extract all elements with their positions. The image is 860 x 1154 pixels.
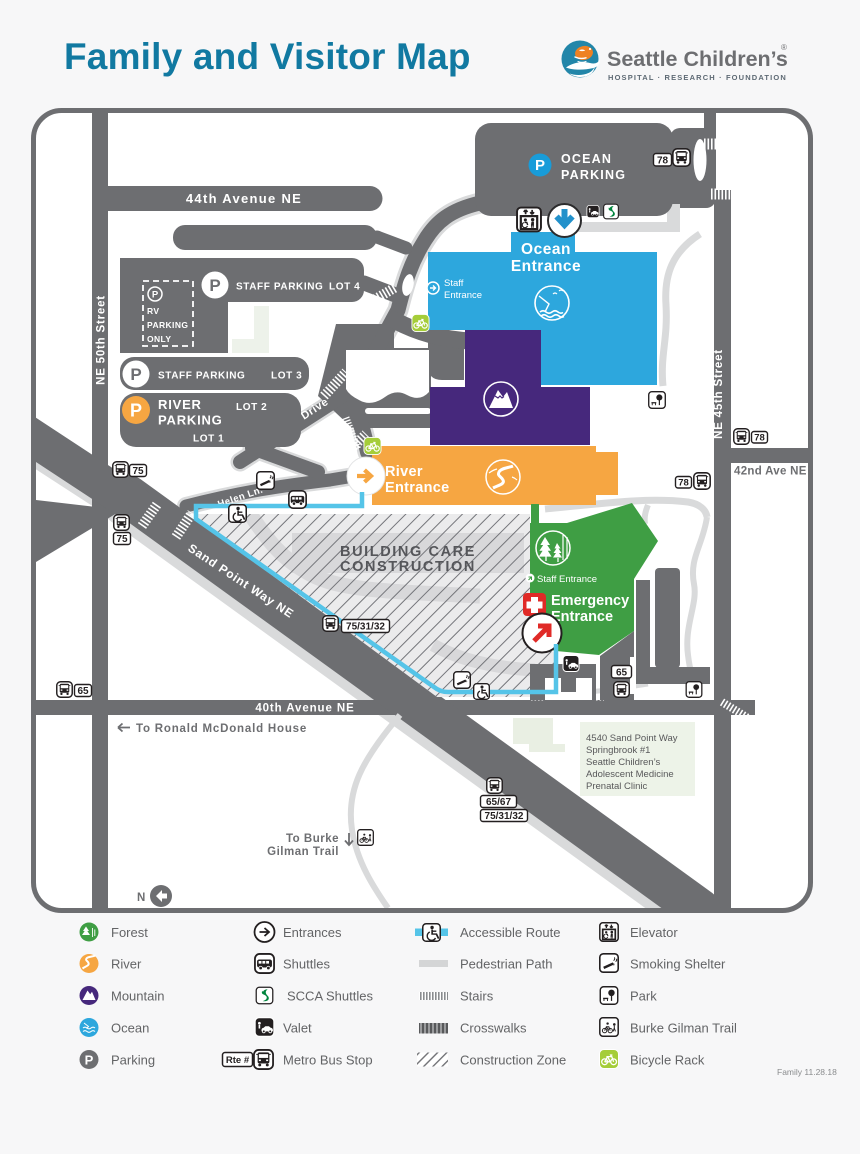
svg-text:P: P xyxy=(130,365,141,384)
svg-text:Shuttles: Shuttles xyxy=(283,957,330,972)
svg-text:OCEAN: OCEAN xyxy=(561,152,612,166)
svg-text:N: N xyxy=(137,892,145,904)
svg-text:Adolescent Medicine: Adolescent Medicine xyxy=(586,769,674,780)
svg-text:P: P xyxy=(535,157,545,174)
svg-text:LOT 1: LOT 1 xyxy=(193,434,224,445)
svg-text:Springbrook #1: Springbrook #1 xyxy=(586,745,650,756)
svg-text:65: 65 xyxy=(77,686,89,697)
svg-text:Ocean: Ocean xyxy=(521,241,571,258)
svg-text:To Ronald McDonald House: To Ronald McDonald House xyxy=(136,723,307,735)
svg-text:Rte #: Rte # xyxy=(226,1055,250,1066)
svg-text:NE 50th Street: NE 50th Street xyxy=(96,295,108,385)
svg-text:Entrance: Entrance xyxy=(444,290,482,301)
svg-text:Metro Bus Stop: Metro Bus Stop xyxy=(283,1053,373,1068)
svg-text:River: River xyxy=(111,957,142,972)
svg-text:P: P xyxy=(209,276,220,295)
svg-text:BUILDING CARE: BUILDING CARE xyxy=(340,544,476,560)
svg-text:P: P xyxy=(152,290,159,301)
svg-text:STAFF PARKING: STAFF PARKING xyxy=(158,371,245,382)
svg-text:®: ® xyxy=(781,43,787,52)
svg-text:Seattle Children’s: Seattle Children’s xyxy=(586,757,661,768)
svg-text:75: 75 xyxy=(132,466,144,477)
svg-text:HOSPITAL · RESEARCH · FOUNDATI: HOSPITAL · RESEARCH · FOUNDATION xyxy=(608,73,787,82)
svg-text:65: 65 xyxy=(616,668,628,679)
svg-text:Staff Entrance: Staff Entrance xyxy=(537,574,597,585)
svg-text:RV: RV xyxy=(147,306,159,316)
svg-text:44th Avenue NE: 44th Avenue NE xyxy=(186,191,302,206)
svg-text:Entrance: Entrance xyxy=(551,609,613,625)
svg-text:Ocean: Ocean xyxy=(111,1021,149,1036)
svg-text:Family 11.28.18: Family 11.28.18 xyxy=(777,1067,837,1077)
svg-text:Seattle Children’s: Seattle Children’s xyxy=(607,47,788,71)
svg-text:Entrance: Entrance xyxy=(385,480,449,496)
svg-text:LOT 2: LOT 2 xyxy=(236,402,267,413)
svg-text:Smoking Shelter: Smoking Shelter xyxy=(630,957,726,972)
svg-text:PARKING: PARKING xyxy=(147,320,188,330)
svg-text:40th Avenue NE: 40th Avenue NE xyxy=(255,703,354,715)
svg-text:75: 75 xyxy=(116,534,128,545)
svg-text:75/31/32: 75/31/32 xyxy=(485,811,524,822)
svg-text:Parking: Parking xyxy=(111,1053,155,1068)
svg-text:75/31/32: 75/31/32 xyxy=(346,622,385,633)
svg-text:NE 45th Street: NE 45th Street xyxy=(713,349,725,439)
svg-text:42nd Ave NE: 42nd Ave NE xyxy=(734,466,807,478)
svg-text:Elevator: Elevator xyxy=(630,925,678,940)
svg-text:Staff: Staff xyxy=(444,278,464,289)
svg-text:Prenatal Clinic: Prenatal Clinic xyxy=(586,781,647,792)
svg-text:Mountain: Mountain xyxy=(111,989,164,1004)
svg-text:4540 Sand Point Way: 4540 Sand Point Way xyxy=(586,733,678,744)
svg-text:Family and Visitor Map: Family and Visitor Map xyxy=(64,36,471,77)
svg-text:STAFF PARKING: STAFF PARKING xyxy=(236,282,323,293)
svg-text:65/67: 65/67 xyxy=(486,797,511,808)
svg-text:Entrance: Entrance xyxy=(511,258,581,275)
svg-text:Entrances: Entrances xyxy=(283,925,342,940)
svg-text:P: P xyxy=(85,1053,94,1068)
svg-text:Park: Park xyxy=(630,989,657,1004)
svg-text:SCCA Shuttles: SCCA Shuttles xyxy=(287,989,373,1004)
svg-text:78: 78 xyxy=(754,433,765,444)
svg-text:Gilman Trail: Gilman Trail xyxy=(267,846,339,858)
svg-text:Burke Gilman Trail: Burke Gilman Trail xyxy=(630,1021,737,1036)
svg-text:LOT 3: LOT 3 xyxy=(271,371,302,382)
svg-text:RIVER: RIVER xyxy=(158,397,202,412)
svg-text:CONSTRUCTION: CONSTRUCTION xyxy=(340,559,476,575)
svg-text:Accessible Route: Accessible Route xyxy=(460,925,560,940)
svg-text:78: 78 xyxy=(657,156,669,167)
svg-text:Bicycle Rack: Bicycle Rack xyxy=(630,1053,705,1068)
svg-text:Construction Zone: Construction Zone xyxy=(460,1053,566,1068)
svg-text:ONLY: ONLY xyxy=(147,334,171,344)
svg-text:Forest: Forest xyxy=(111,925,148,940)
svg-text:PARKING: PARKING xyxy=(561,168,626,182)
svg-text:LOT 4: LOT 4 xyxy=(329,282,360,293)
svg-text:Stairs: Stairs xyxy=(460,989,494,1004)
svg-text:Pedestrian Path: Pedestrian Path xyxy=(460,957,553,972)
svg-text:Emergency: Emergency xyxy=(551,593,629,609)
svg-text:78: 78 xyxy=(678,478,689,489)
svg-text:P: P xyxy=(130,401,142,421)
svg-text:Valet: Valet xyxy=(283,1021,312,1036)
svg-text:To Burke: To Burke xyxy=(286,833,339,845)
svg-text:River: River xyxy=(385,464,423,480)
svg-text:PARKING: PARKING xyxy=(158,413,223,428)
svg-text:Crosswalks: Crosswalks xyxy=(460,1021,527,1036)
